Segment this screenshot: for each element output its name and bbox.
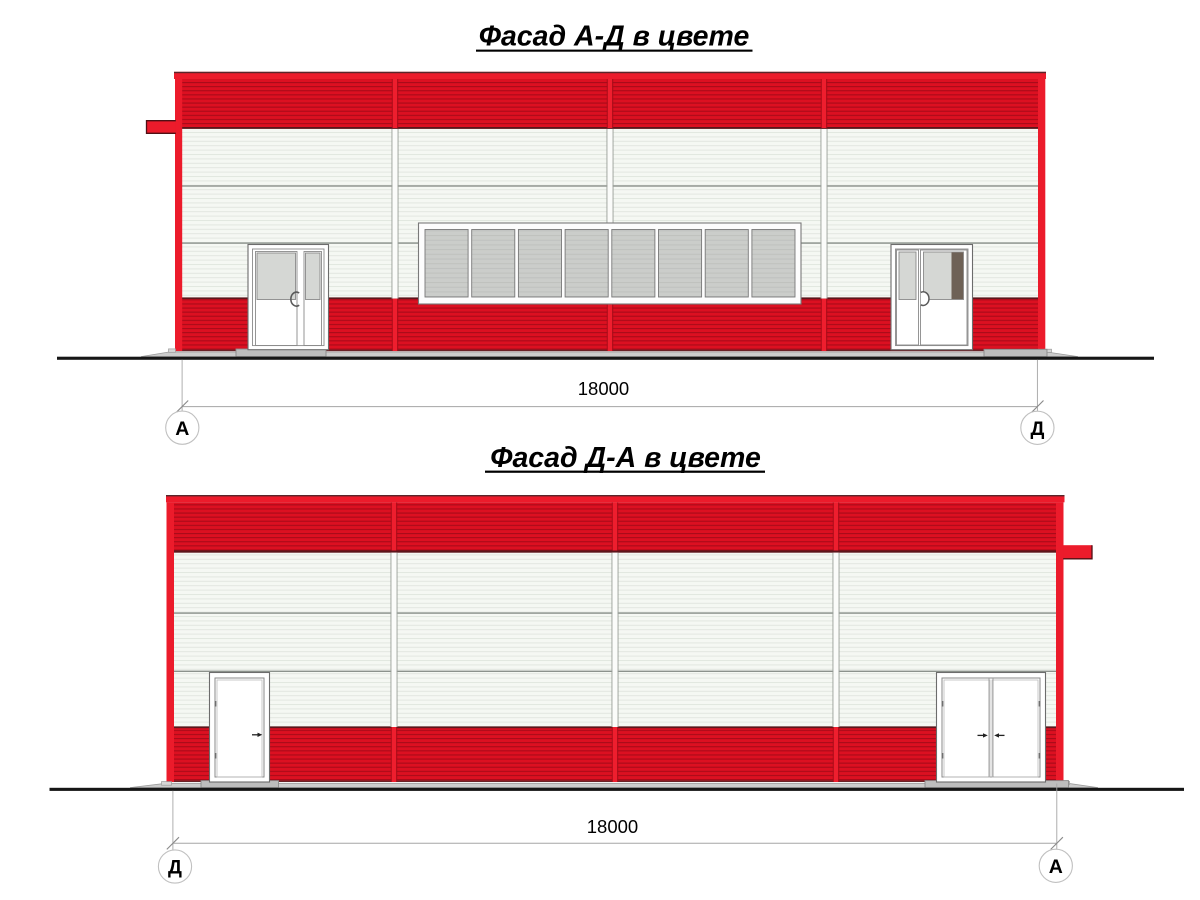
svg-text:Фасад Д-А в цвете: Фасад Д-А в цвете [490,442,761,474]
svg-text:Д: Д [1030,418,1044,440]
svg-text:Д: Д [168,857,182,879]
svg-text:18000: 18000 [578,378,629,399]
svg-text:Фасад А-Д в цвете: Фасад А-Д в цвете [479,21,750,53]
svg-text:А: А [175,418,189,440]
svg-text:А: А [1049,856,1063,878]
svg-text:18000: 18000 [587,816,638,837]
